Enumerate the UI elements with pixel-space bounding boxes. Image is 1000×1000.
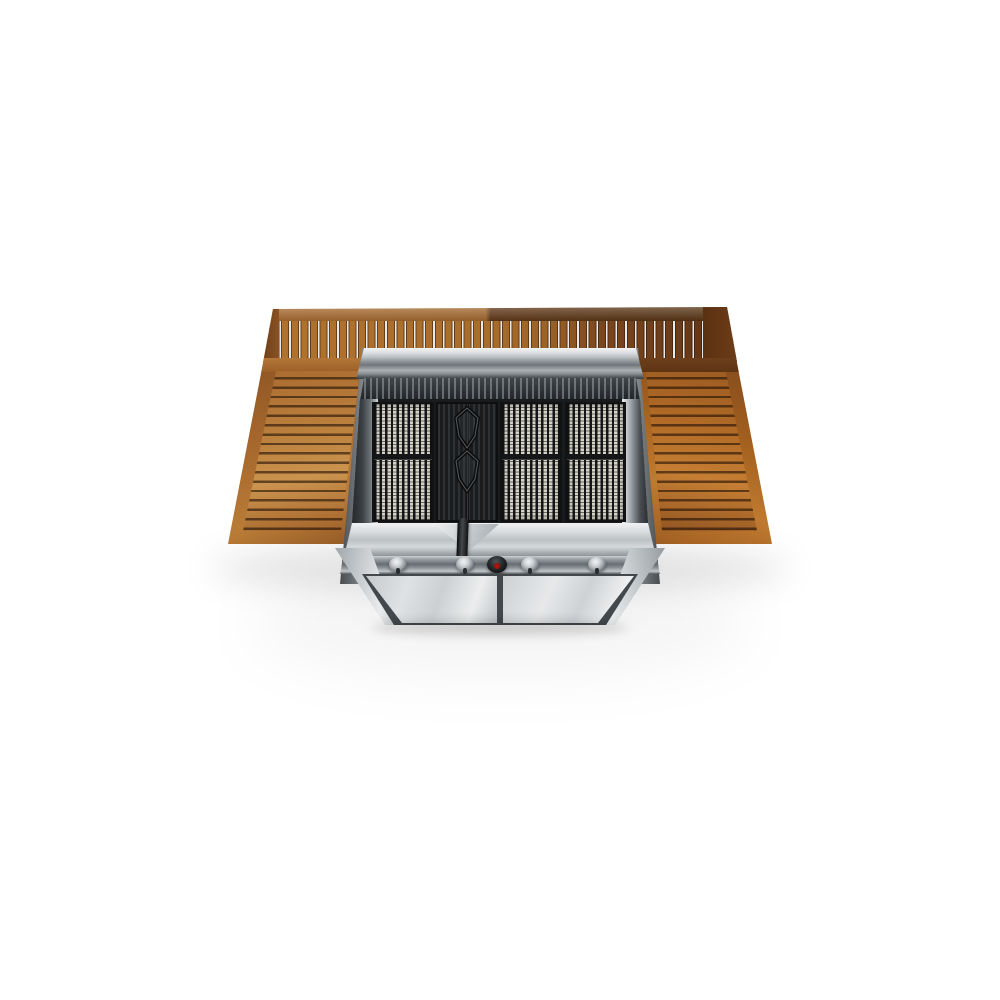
left-shelf-top-rail bbox=[228, 357, 368, 372]
grill-back-bar bbox=[356, 348, 644, 379]
back-panel-top-rail bbox=[263, 307, 737, 322]
griddle-plate bbox=[436, 402, 498, 522]
right-shelf-slats bbox=[642, 370, 760, 532]
product-photo-scene bbox=[0, 0, 1000, 1000]
cabinet-base bbox=[330, 548, 670, 627]
griddle-handle-upper bbox=[452, 406, 482, 450]
grate-panel-2 bbox=[500, 402, 562, 522]
grate-crossbar bbox=[567, 454, 624, 460]
griddle-handle-lower bbox=[452, 449, 482, 493]
grill-interior-back bbox=[358, 378, 642, 401]
cooking-surface bbox=[352, 399, 648, 525]
back-panel-left-endcap bbox=[263, 307, 279, 363]
cabinet-shadow bbox=[372, 620, 628, 635]
back-panel-right-endblock bbox=[703, 307, 737, 363]
grate-crossbar bbox=[502, 454, 560, 460]
right-shelf-top-rail bbox=[632, 357, 774, 372]
grate-panel-3 bbox=[565, 402, 626, 522]
grate-crossbar bbox=[374, 454, 432, 460]
left-shelf-slats bbox=[242, 370, 358, 532]
grate-panel-1 bbox=[372, 402, 434, 522]
